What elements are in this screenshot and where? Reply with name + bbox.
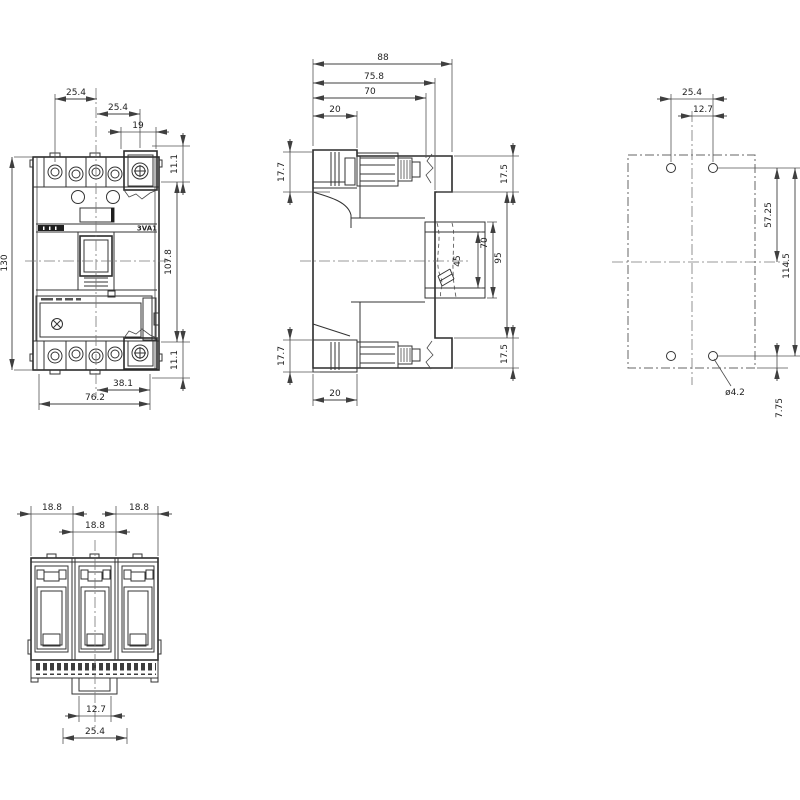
front-top-box-terminal [124, 151, 157, 199]
drilling-plan-dimensions: 25.4 12.7 57.25 114.5 7.75 ø4.2 [657, 88, 800, 418]
terminal-screw [108, 347, 122, 361]
break-line [426, 154, 433, 183]
front-view-dimensions: 25.4 25.4 19 130 11.1 107.8 [0, 88, 190, 410]
dim-label: 88 [377, 53, 389, 63]
hole-leader-line [714, 359, 731, 386]
nameplate-shadow [111, 208, 114, 222]
dim-label: 130 [0, 254, 10, 271]
mounting-hole [709, 352, 718, 361]
mounting-hole [667, 164, 676, 173]
terminal-screw [48, 165, 62, 179]
front-accessory-panel [36, 296, 159, 341]
dim-label: 70 [364, 87, 376, 97]
dim-label: 76.2 [85, 393, 105, 403]
bottom-pole-cavity [122, 566, 154, 652]
dim-label: 107.8 [164, 249, 174, 275]
bottom-view: 18.8 18.8 18.8 [17, 503, 172, 744]
front-view: 3VA1 [0, 88, 190, 410]
front-toggle-area [36, 232, 157, 297]
terminal-screw [69, 347, 83, 361]
side-top-terminal [313, 152, 433, 188]
mounting-screw-sketch [438, 269, 454, 286]
terminal-screw [48, 349, 62, 363]
bottom-mounting-tab [72, 678, 117, 694]
dim-label: 95 [494, 252, 504, 263]
dimensional-drawing-canvas: 3VA1 [0, 0, 800, 800]
mounting-hole [709, 164, 718, 173]
dim-label: 25.4 [108, 103, 128, 113]
dim-label: 45 [453, 255, 463, 266]
front-hole [107, 191, 120, 204]
dim-label: 20 [329, 389, 341, 399]
terminal-screw [108, 167, 122, 181]
dim-label: 57.25 [764, 202, 774, 228]
dim-label: 17.7 [277, 346, 287, 366]
dim-label: 17.5 [500, 164, 510, 184]
side-chamfer-top [313, 192, 351, 228]
drilling-plan-outline [628, 155, 755, 368]
dim-label: 18.8 [85, 521, 105, 531]
break-line [426, 341, 433, 369]
dim-label: 25.4 [85, 727, 105, 737]
dim-label: 11.1 [170, 350, 180, 370]
break-line [124, 190, 157, 199]
dim-label: 12.7 [693, 105, 713, 115]
dim-label: 7.75 [775, 398, 785, 418]
front-label-band: 3VA1 [36, 224, 157, 233]
front-hole [72, 191, 85, 204]
bottom-pole-cavity [35, 566, 68, 652]
side-chamfer-bottom [313, 324, 350, 336]
dim-label: 70 [480, 237, 490, 249]
terminal-screw [69, 167, 83, 181]
nameplate-window [80, 208, 114, 222]
side-view: 88 75.8 70 20 17.7 17.7 [277, 53, 519, 406]
dim-label: ø4.2 [725, 388, 745, 398]
base-texture [33, 663, 156, 675]
dim-label: 38.1 [113, 379, 133, 389]
mounting-hole [667, 352, 676, 361]
product-type-label: 3VA1 [137, 225, 157, 233]
dim-label: 75.8 [364, 72, 384, 82]
technical-drawing-page: 3VA1 [0, 0, 800, 800]
drilling-plan: 25.4 12.7 57.25 114.5 7.75 ø4.2 [612, 88, 800, 418]
dim-label: 25.4 [66, 88, 86, 98]
bottom-view-dimensions-top: 18.8 18.8 18.8 [17, 503, 172, 556]
dim-label: 114.5 [782, 253, 792, 279]
dim-label: 19 [132, 121, 144, 131]
dim-label: 18.8 [42, 503, 62, 513]
dim-label: 20 [329, 105, 341, 115]
brand-logo [38, 225, 64, 231]
section-break-curve [437, 223, 442, 297]
panel-fine-print [41, 298, 53, 301]
dim-label: 17.5 [500, 344, 510, 364]
dim-label: 18.8 [129, 503, 149, 513]
dim-label: 11.1 [170, 154, 180, 174]
dim-label: 17.7 [277, 162, 287, 182]
dim-label: 12.7 [86, 705, 106, 715]
dim-label: 25.4 [682, 88, 702, 98]
bottom-base-strip [31, 660, 158, 682]
